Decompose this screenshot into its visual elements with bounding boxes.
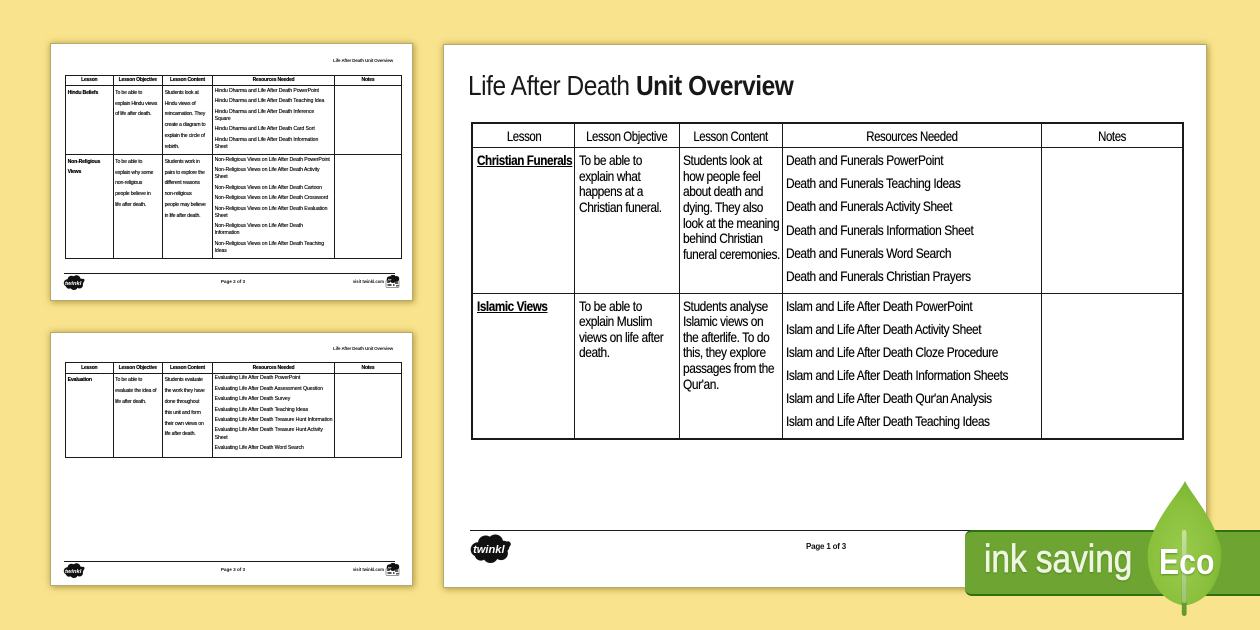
svg-text:twinkl: twinkl <box>65 281 82 287</box>
svg-text:twinkl: twinkl <box>473 544 505 556</box>
svg-text:twinkl: twinkl <box>65 569 82 575</box>
